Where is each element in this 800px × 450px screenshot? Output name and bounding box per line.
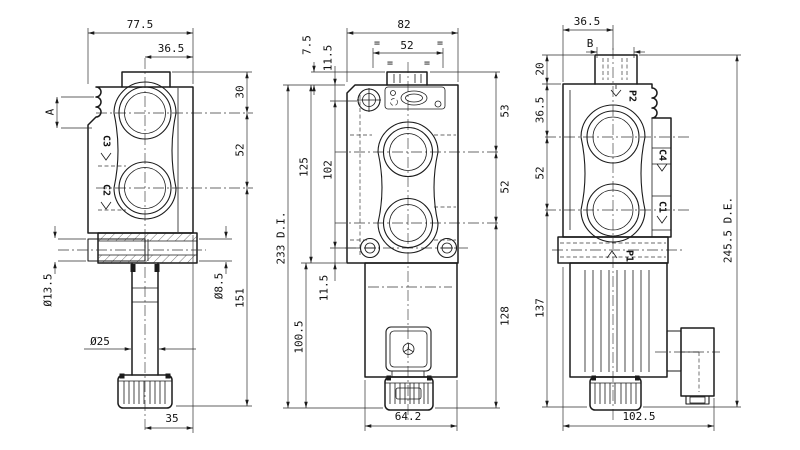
port-label-c3: C3 (101, 135, 112, 147)
hatch-band-top (99, 234, 197, 242)
dim-front-port-spacing: 52 (499, 180, 512, 193)
port-label-p1: P1 (624, 250, 635, 262)
dim-front-top-to-port: 53 (499, 104, 512, 117)
technical-drawing-canvas: C3 C2 77.5 36.5 30 52 151 A Ø13.5 Ø8.5 Ø… (0, 0, 800, 450)
dim-side-tab-height: 20 (534, 62, 547, 75)
port-label-c1: C1 (657, 201, 668, 213)
dim-front-plug-offset: 11.5 (322, 45, 335, 72)
symmetry-mark: = (424, 58, 430, 69)
dim-front-total-width: 82 (397, 18, 410, 31)
dim-front-chain-mid: 102 (322, 160, 335, 180)
symmetry-mark: = (387, 58, 393, 69)
port-label-c4: C4 (657, 149, 668, 161)
dim-side-overall-height: 245.5 D.E. (722, 197, 735, 263)
port-label-c2: C2 (101, 184, 112, 196)
dim-side-tab-width: B (587, 37, 594, 50)
dim-front-solenoid-length: 100.5 (293, 320, 306, 353)
dim-side-port-spacing: 52 (534, 166, 547, 179)
drawing-page: C3 C2 77.5 36.5 30 52 151 A Ø13.5 Ø8.5 Ø… (0, 0, 800, 450)
dim-left-top-to-port: 30 (234, 85, 247, 98)
symmetry-mark: = (374, 38, 380, 49)
port-label-p2: P2 (627, 90, 638, 102)
dim-left-hole-dia: Ø8.5 (213, 273, 226, 300)
dim-side-edge-to-center: 36.5 (574, 15, 601, 28)
background (0, 0, 800, 450)
dim-left-stem-length: 151 (234, 288, 247, 308)
dim-left-total-width: 77.5 (127, 18, 154, 31)
dim-front-upper-spacing: 52 (400, 39, 413, 52)
dim-side-lower-height: 137 (534, 298, 547, 318)
dim-left-stem-dia: Ø25 (90, 335, 110, 348)
dim-left-center-to-edge: 36.5 (158, 42, 185, 55)
dim-side-overall-width: 102.5 (622, 410, 655, 423)
symmetry-mark: = (437, 38, 443, 49)
dim-front-screw-offset: 11.5 (318, 275, 331, 302)
dim-front-overall-height: 233 D.I. (275, 212, 288, 265)
dim-left-knob-offset: 35 (165, 412, 178, 425)
dim-front-solenoid-width: 64.2 (395, 410, 422, 423)
dim-left-handle-ref: A (44, 108, 57, 115)
dim-front-tab-offset: 7.5 (301, 35, 314, 55)
dim-front-body-height: 125 (298, 157, 311, 177)
dim-side-top-to-port: 36.5 (534, 97, 547, 124)
dim-front-lower-height: 128 (499, 306, 512, 326)
dim-left-port-spacing: 52 (234, 143, 247, 156)
dim-left-clamp-dia: Ø13.5 (42, 273, 55, 306)
